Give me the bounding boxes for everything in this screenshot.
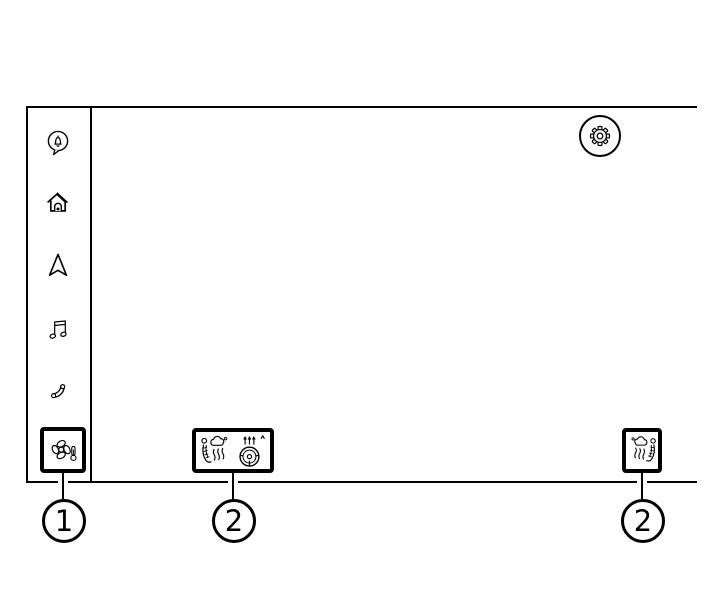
callout-2-center-number: 2 [225,507,243,536]
settings-button[interactable] [579,115,621,157]
climate-bar-center[interactable] [192,428,274,473]
callout-1: 1 [42,499,86,543]
navigation-arrow-icon [47,252,69,278]
ventilated-seat-mirrored-icon [627,434,658,467]
gear-icon [582,118,618,154]
music-note-icon [46,317,70,343]
callout-2-right-number: 2 [634,507,652,536]
climate-bar-right[interactable] [622,428,662,473]
notification-bubble-icon [46,129,70,157]
callout-2-center: 2 [212,499,256,543]
callout-1-number: 1 [55,507,73,536]
sidebar-item-music[interactable] [46,317,70,343]
display-screen [26,106,697,483]
sidebar-item-notifications[interactable] [46,129,70,157]
climate-fan-button[interactable] [40,427,86,473]
sidebar-item-home[interactable] [45,189,71,215]
home-icon [45,189,71,215]
climate-fan-icon [47,434,80,467]
heated-steering-wheel-icon [232,432,267,469]
callout-2-center-leader-line [232,473,234,500]
sidebar-item-navigation[interactable] [47,252,69,278]
callout-1-leader-line [62,473,64,500]
sidebar-menu [28,108,92,481]
phone-icon [46,379,70,403]
sidebar-item-phone[interactable] [46,379,70,403]
callout-2-right: 2 [621,499,665,543]
callout-2-right-leader-line [641,473,643,500]
ventilated-seat-icon [199,434,232,468]
infotainment-display-diagram: 1 2 2 [0,0,722,592]
